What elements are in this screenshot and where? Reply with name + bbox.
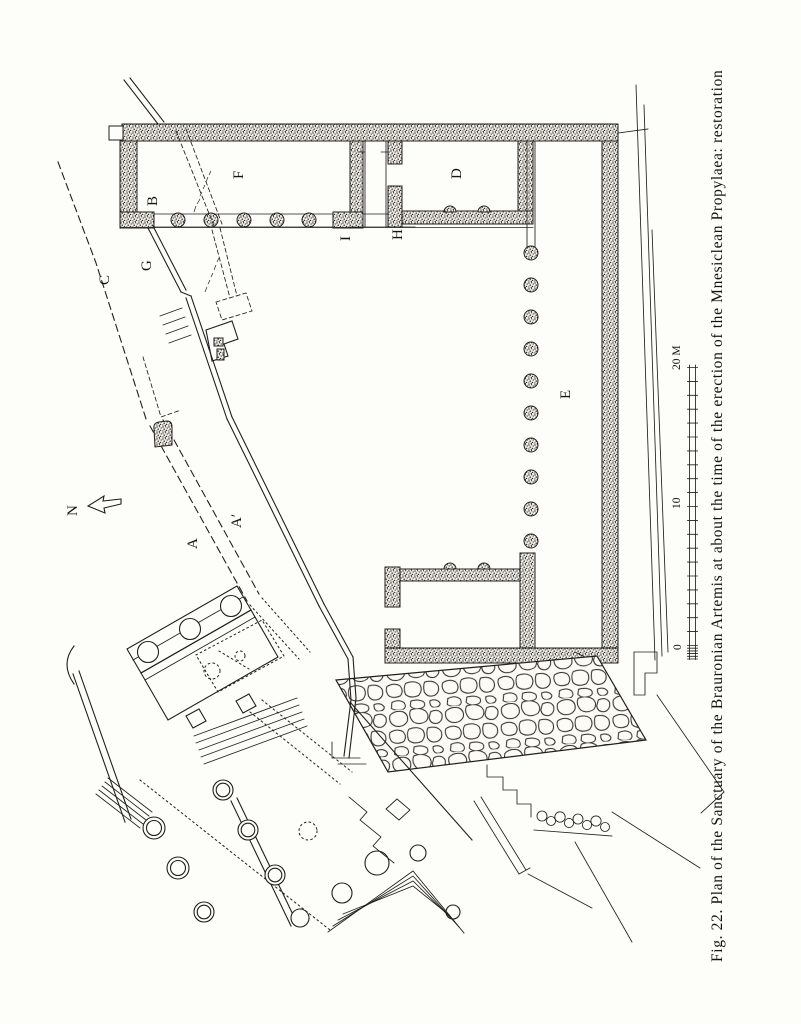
portico-pillars [186,694,256,728]
annex-door-jambs [385,607,400,629]
annex-rooms [385,563,520,648]
gate-bastion [143,293,252,417]
figure-caption: Fig. 22. Plan of the Sanctuary of the Br… [709,70,726,962]
stoa-e-west-wall-lower [520,553,535,648]
nw-steps [194,698,307,764]
plan-label-c: C [97,275,113,285]
north-arrow-icon [88,496,121,513]
scale-label-ten: 10 [671,497,683,509]
stoa-e-colonnade-columns [524,246,538,548]
road-a-dotted-continuation [250,598,310,659]
cyclopean-wall [336,656,646,772]
plan-label-e: E [558,390,574,399]
doric-columns [291,845,460,927]
stoa-e-east-wall [602,141,618,660]
scale-bar-labels: 01020 M [671,345,684,650]
plan-label-i: I [338,236,354,241]
gate-ramp-steps [160,308,191,343]
annex-west-wall-lower [385,629,400,648]
plan-label-h: H [390,229,406,240]
room-f-colonnade-columns [171,213,316,227]
se-steps-corner [328,871,464,933]
plan-label-a-prime: A′ [229,514,245,528]
room-d-west-wall-upper [388,141,402,164]
tiny-annotations [194,171,219,292]
plan-label-f: F [231,171,247,179]
room-d-south-wall [402,211,533,224]
room-d-west-wall-lower [388,186,402,227]
annex-north-wall [400,569,520,581]
plan-label-g: G [139,260,155,271]
west-wall [120,141,137,212]
wall-notch [109,126,123,140]
room-d-east-wall [518,141,533,213]
south-wall-east-block [333,212,363,228]
nw-wing [127,586,278,720]
scale-bar: 01020 M [671,345,698,659]
west-wall-double [67,646,131,822]
mycenaean-wall-dashed [176,129,237,298]
ionic-columns [143,780,317,922]
older-propylon-dotted [140,620,352,930]
annex-column-bumps [444,563,490,569]
south-wall-west-block [120,212,154,228]
plan-label-a: A [185,538,201,549]
stone-row [534,811,612,836]
building-bfd-complex [109,124,618,228]
north-wall [122,124,618,141]
road-a-dashed [150,420,259,601]
site-plan-figure: 01020 M BFIHDEGCAA′N Fig. 22. Plan of th… [0,0,801,1024]
scale-bar-ticks [688,368,698,660]
plan-label-north-letter: N [65,505,81,516]
altar-block [154,421,172,447]
plan-label-d: D [449,168,465,179]
annex-west-wall-upper [385,567,400,607]
temenos-wall-g [124,78,356,758]
scale-label-twenty: 20 M [671,345,683,370]
plan-label-b: B [145,196,161,206]
scanned-page: 01020 M BFIHDEGCAA′N Fig. 22. Plan of th… [0,0,801,1024]
scale-label-zero: 0 [672,644,684,650]
